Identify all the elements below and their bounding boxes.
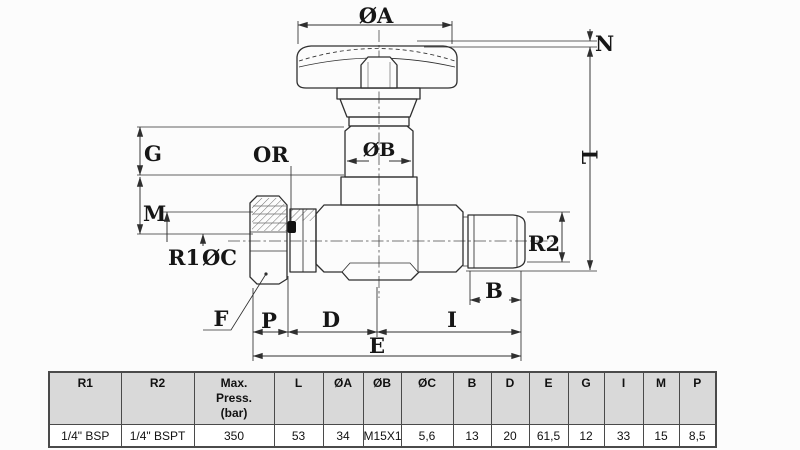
col-header-r2: R2 <box>121 372 194 425</box>
dim-label-p: P <box>261 308 277 333</box>
cell-m: 15 <box>643 425 679 448</box>
dimensions-table: R1 R2 Max. Press. (bar) L ØA ØB ØC B D E… <box>48 371 717 448</box>
cell-g: 12 <box>568 425 604 448</box>
dim-label-r1: R1 <box>168 245 200 270</box>
valve-technical-drawing: ØA N L G M R1 ØC <box>0 0 800 368</box>
col-header-e: E <box>529 372 568 425</box>
valve-datasheet-page: ØA N L G M R1 ØC <box>0 0 800 450</box>
dims-left-side: G M R1 ØC <box>137 127 344 270</box>
col-header-g: G <box>568 372 604 425</box>
cell-b: 13 <box>453 425 491 448</box>
col-header-dia-c: ØC <box>401 372 453 425</box>
col-header-max-press: Max. Press. (bar) <box>194 372 274 425</box>
dim-label-e: E <box>369 333 385 358</box>
cell-max-press: 350 <box>194 425 274 448</box>
dim-b: B <box>470 271 521 305</box>
male-thread-end <box>468 215 525 268</box>
dim-label-r2: R2 <box>528 231 560 256</box>
dim-r2: R2 <box>527 212 570 262</box>
table-header-row: R1 R2 Max. Press. (bar) L ØA ØB ØC B D E… <box>49 372 716 425</box>
dim-label-d: D <box>322 307 340 332</box>
dim-label-diameter-b: ØB <box>363 139 396 161</box>
dim-diameter-a: ØA <box>298 3 452 44</box>
cell-dia-a: 34 <box>323 425 363 448</box>
cell-dia-c: 5,6 <box>401 425 453 448</box>
o-ring <box>288 221 297 233</box>
callout-f: F <box>203 272 268 331</box>
dim-label-i: I <box>447 307 457 332</box>
dim-label-n: N <box>595 31 614 56</box>
cell-r2: 1/4" BSPT <box>121 425 194 448</box>
cell-p: 8,5 <box>679 425 716 448</box>
hand-knob <box>297 46 457 88</box>
dim-label-l: L <box>577 150 602 165</box>
dim-label-or: OR <box>253 142 289 167</box>
cell-r1: 1/4" BSP <box>49 425 121 448</box>
col-header-m: M <box>643 372 679 425</box>
cell-e: 61,5 <box>529 425 568 448</box>
dim-label-b: B <box>485 278 503 303</box>
valve-body <box>316 205 468 280</box>
cell-dia-b: M15X1 <box>363 425 401 448</box>
col-header-dia-a: ØA <box>323 372 363 425</box>
cell-d: 20 <box>491 425 529 448</box>
col-header-b: B <box>453 372 491 425</box>
col-header-l: L <box>274 372 323 425</box>
dim-label-g: G <box>144 141 162 166</box>
cell-l: 53 <box>274 425 323 448</box>
dim-label-diameter-a: ØA <box>359 3 394 28</box>
dim-label-m: M <box>143 201 166 226</box>
dim-label-diameter-c: ØC <box>202 245 237 270</box>
table-row: 1/4" BSP 1/4" BSPT 350 53 34 M15X1 5,6 1… <box>49 425 716 448</box>
dim-diameter-b: ØB <box>347 139 411 161</box>
dims-bottom: P D I E <box>253 271 521 361</box>
col-header-d: D <box>491 372 529 425</box>
swivel-nut <box>250 196 287 284</box>
cell-i: 33 <box>604 425 643 448</box>
col-header-p: P <box>679 372 716 425</box>
dim-n: N <box>417 29 614 59</box>
dim-label-f: F <box>214 306 229 331</box>
tailpiece <box>288 209 317 272</box>
col-header-i: I <box>604 372 643 425</box>
col-header-r1: R1 <box>49 372 121 425</box>
col-header-dia-b: ØB <box>363 372 401 425</box>
